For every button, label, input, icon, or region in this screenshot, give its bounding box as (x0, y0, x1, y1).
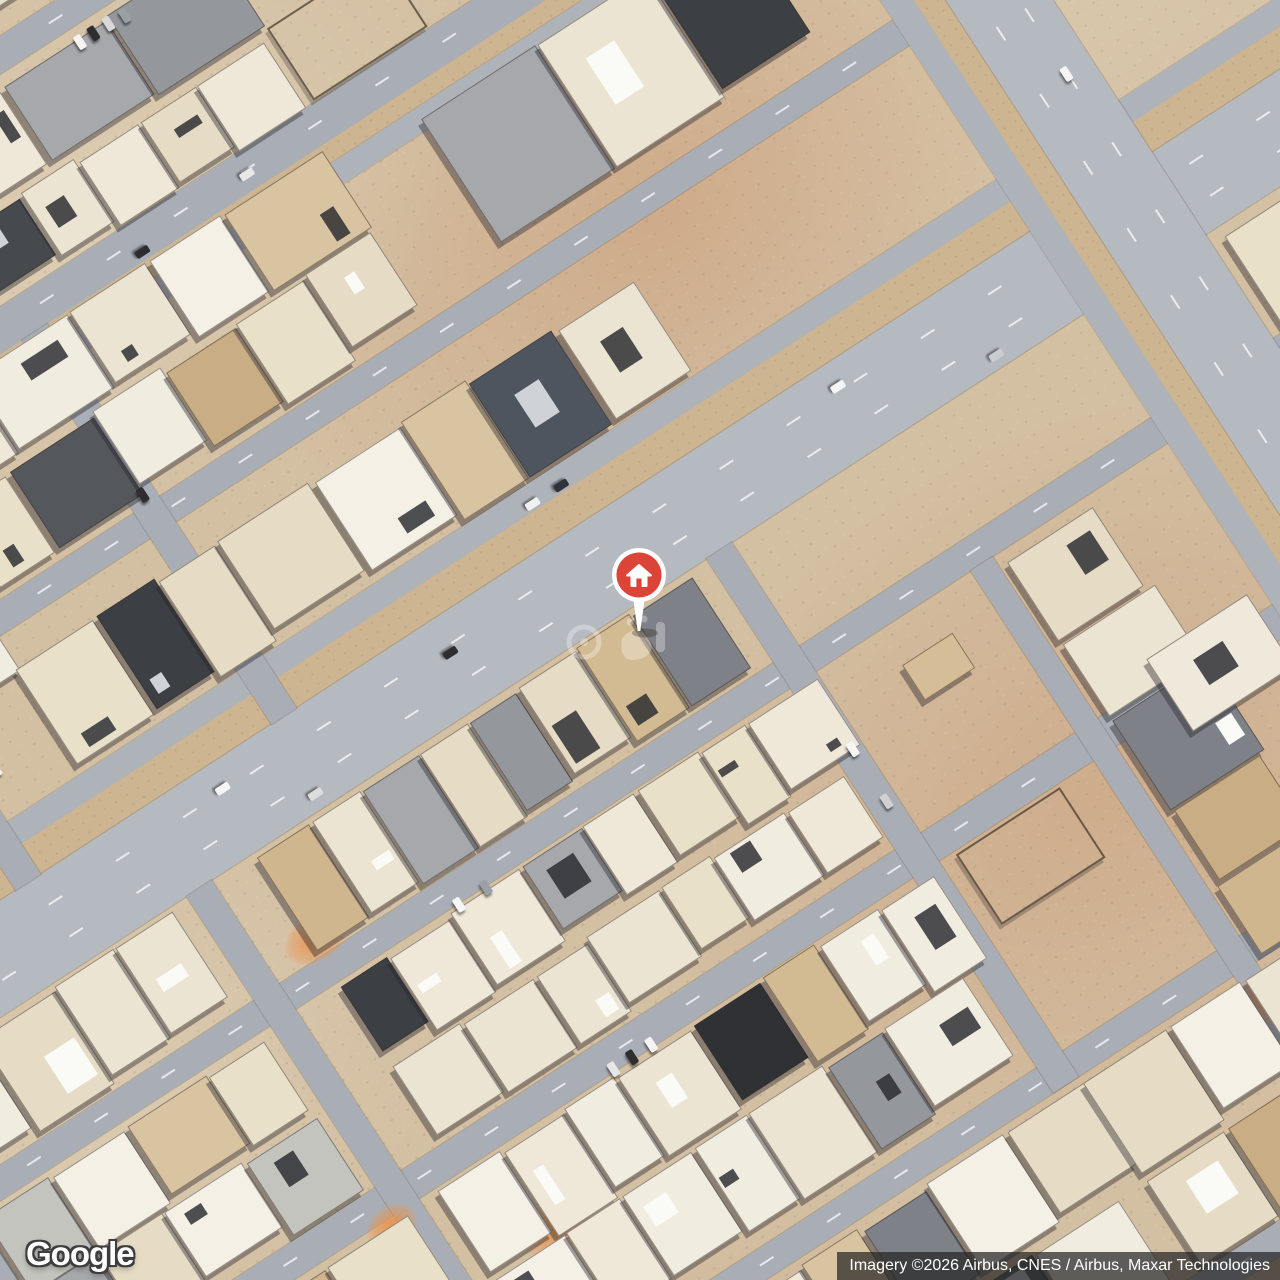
building-courtyard (344, 271, 365, 294)
building-courtyard (595, 992, 619, 1017)
building-courtyard (1215, 712, 1246, 745)
building-courtyard (417, 972, 442, 994)
building-courtyard (149, 672, 171, 694)
building-courtyard (1186, 1160, 1239, 1213)
google-logo[interactable]: Google (26, 1235, 134, 1273)
car (0, 761, 3, 778)
building-courtyard (514, 379, 559, 427)
building-courtyard (3, 544, 25, 568)
building-courtyard (120, 344, 139, 363)
building-courtyard (490, 931, 522, 969)
building-courtyard (0, 228, 9, 263)
location-pin[interactable] (599, 533, 679, 643)
building-courtyard (274, 1151, 309, 1187)
building-courtyard (718, 1168, 739, 1188)
building-courtyard (1066, 530, 1109, 575)
building-courtyard (21, 340, 69, 381)
pin-stem (633, 597, 645, 631)
building-courtyard (505, 1270, 548, 1280)
building-courtyard (156, 964, 189, 992)
building-courtyard (626, 693, 659, 726)
building-courtyard (718, 760, 739, 778)
attribution-text: Imagery ©2026 Airbus, CNES / Airbus, Max… (849, 1257, 1270, 1274)
building-courtyard (915, 904, 957, 950)
building-courtyard (939, 1007, 981, 1046)
building-courtyard (600, 327, 642, 372)
building-courtyard (876, 1073, 902, 1101)
building-courtyard (533, 1164, 566, 1206)
building-courtyard (174, 114, 203, 138)
building-courtyard (552, 710, 600, 763)
building-courtyard (1193, 641, 1239, 685)
pin-shadow (632, 629, 658, 638)
building-courtyard (45, 195, 77, 228)
attribution-bar: Imagery ©2026 Airbus, CNES / Airbus, Max… (837, 1252, 1280, 1280)
building-courtyard (547, 853, 592, 899)
building-courtyard (184, 1203, 208, 1225)
building-courtyard (861, 934, 889, 966)
building-courtyard (43, 1037, 98, 1094)
building-courtyard (371, 849, 395, 870)
building-courtyard (320, 206, 350, 241)
building-courtyard (643, 1192, 679, 1227)
building-courtyard (656, 1073, 688, 1108)
building (902, 633, 975, 701)
map-viewport[interactable]: Google Imagery ©2026 Airbus, CNES / Airb… (0, 0, 1280, 1280)
building-courtyard (586, 41, 644, 105)
building-courtyard (730, 841, 762, 873)
building-courtyard (826, 738, 842, 752)
building-courtyard (398, 500, 436, 534)
building-courtyard (80, 716, 116, 748)
building-courtyard (0, 111, 21, 144)
